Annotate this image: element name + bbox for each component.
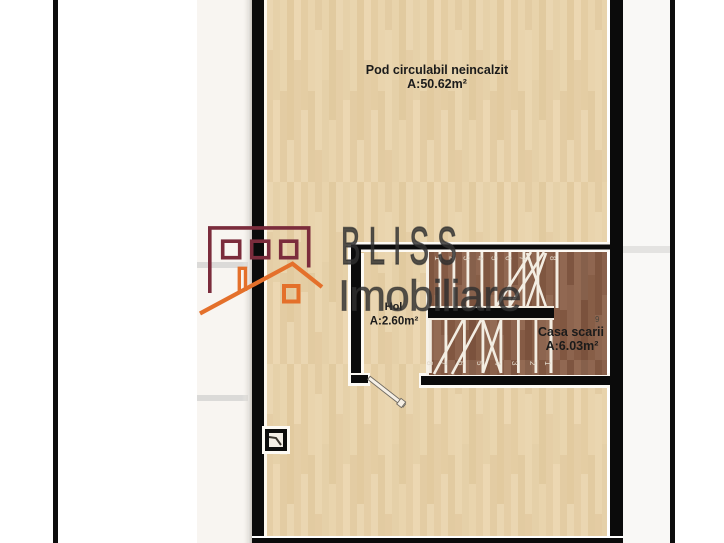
svg-text:8: 8	[548, 256, 557, 261]
svg-text:A:6.03m²: A:6.03m²	[546, 339, 599, 353]
svg-text:6: 6	[504, 256, 513, 261]
svg-text:1: 1	[543, 361, 552, 366]
svg-text:4: 4	[493, 361, 502, 366]
svg-text:2: 2	[528, 361, 537, 366]
svg-text:6: 6	[456, 361, 465, 366]
svg-text:A:50.62m²: A:50.62m²	[407, 77, 467, 91]
svg-text:8: 8	[425, 361, 434, 366]
svg-text:Imobiliare: Imobiliare	[338, 272, 521, 321]
svg-text:Casa scarii: Casa scarii	[538, 325, 604, 339]
svg-text:7: 7	[518, 256, 527, 261]
svg-text:4: 4	[476, 256, 485, 261]
svg-text:Pod circulabil neincalzit: Pod circulabil neincalzit	[366, 63, 509, 77]
svg-text:5: 5	[475, 361, 484, 366]
svg-text:5: 5	[490, 256, 499, 261]
svg-text:BLISS: BLISS	[341, 217, 465, 276]
svg-text:3: 3	[510, 361, 519, 366]
svg-text:7: 7	[439, 361, 448, 366]
svg-text:9: 9	[595, 315, 600, 324]
